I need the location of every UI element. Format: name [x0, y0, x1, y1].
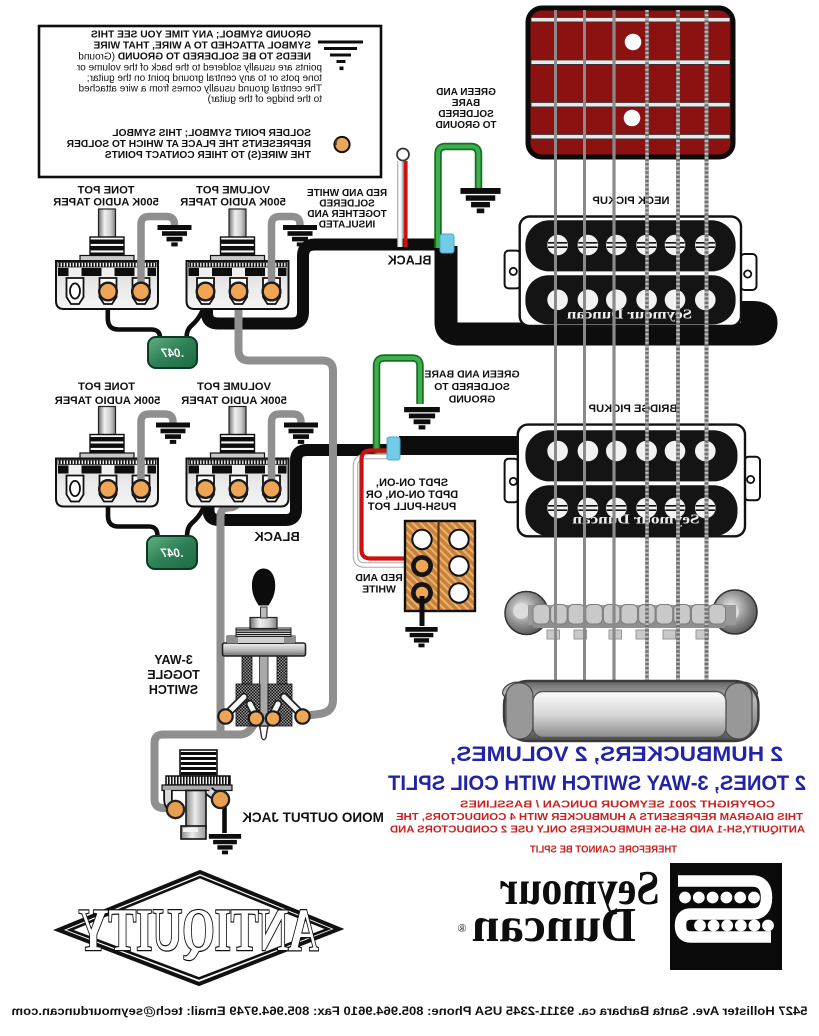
- svg-text:VOLUME POT: VOLUME POT: [197, 381, 271, 393]
- svg-text:GROUND SYMBOL; ANY TIME YOU SE: GROUND SYMBOL; ANY TIME YOU SEE THIS: [91, 30, 311, 41]
- svg-text:SOLDERED: SOLDERED: [319, 199, 375, 210]
- svg-text:®: ®: [457, 921, 466, 935]
- svg-text:500K AUDIO TAPER: 500K AUDIO TAPER: [180, 197, 286, 209]
- svg-text:ANTIQUITY: ANTIQUITY: [78, 897, 318, 963]
- svg-text:2 HUMBUCKERS, 2 VOLUMES,: 2 HUMBUCKERS, 2 VOLUMES,: [450, 743, 783, 766]
- svg-text:SOLDERED: SOLDERED: [438, 109, 494, 120]
- svg-text:THIS DIAGRAM REPRESENTS A HUMB: THIS DIAGRAM REPRESENTS A HUMBUCKER WITH…: [396, 811, 803, 823]
- svg-text:tone pots or to any central gr: tone pots or to any central ground point…: [87, 73, 322, 84]
- svg-text:NEEDS TO BE SOLDERED TO GROUND: NEEDS TO BE SOLDERED TO GROUND (Ground: [78, 52, 311, 63]
- svg-text:GREEN AND BARE: GREEN AND BARE: [424, 369, 519, 381]
- svg-text:RED AND: RED AND: [355, 572, 403, 584]
- svg-text:500K AUDIO TAPER: 500K AUDIO TAPER: [55, 395, 161, 407]
- svg-text:500K AUDIO TAPER: 500K AUDIO TAPER: [181, 395, 287, 407]
- svg-text:TOGGLE: TOGGLE: [147, 668, 200, 682]
- svg-text:BRIDGE PICKUP: BRIDGE PICKUP: [588, 403, 677, 415]
- svg-text:TONE POT: TONE POT: [78, 381, 135, 393]
- svg-text:ANTIQUITY,SH-1 AND SH-55 HUMBU: ANTIQUITY,SH-1 AND SH-55 HUMBUCKERS ONLY…: [390, 824, 805, 836]
- svg-text:NECK PICKUP: NECK PICKUP: [592, 195, 670, 207]
- svg-text:VOLUME POT: VOLUME POT: [196, 185, 270, 197]
- svg-text:3-WAY: 3-WAY: [154, 653, 193, 667]
- svg-text:COPYRIGHT 2001 SEYMOUR DUNCAN: COPYRIGHT 2001 SEYMOUR DUNCAN / BASSLINE…: [460, 799, 775, 811]
- svg-text:INSULATED: INSULATED: [319, 220, 375, 231]
- svg-text:TOGETHER AND: TOGETHER AND: [307, 209, 386, 220]
- svg-text:SPDT ON-ON,: SPDT ON-ON,: [376, 477, 448, 489]
- svg-text:DPDT ON-ON, OR: DPDT ON-ON, OR: [366, 489, 458, 501]
- svg-text:THEREFORE CANNOT BE SPLIT: THEREFORE CANNOT BE SPLIT: [529, 844, 677, 856]
- svg-text:TO GROUND: TO GROUND: [436, 120, 497, 131]
- svg-text:2 TONES, 3-WAY SWITCH WITH COI: 2 TONES, 3-WAY SWITCH WITH COIL SPLIT: [388, 772, 806, 795]
- svg-text:GROUND: GROUND: [448, 394, 495, 406]
- svg-text:5427 Hollister Ave. Santa Barb: 5427 Hollister Ave. Santa Barbara ca. 93…: [11, 1004, 807, 1018]
- svg-text:points are usually soldered to: points are usually soldered to the back …: [76, 63, 322, 74]
- svg-text:SOLDER POINT SYMBOL; THIS SYMB: SOLDER POINT SYMBOL; THIS SYMBOL: [112, 128, 311, 139]
- svg-text:BARE: BARE: [452, 98, 481, 109]
- svg-text:SYMBOL ATTACHED TO A WIRE, THA: SYMBOL ATTACHED TO A WIRE, THAT WIRE: [93, 41, 311, 52]
- svg-text:Duncan: Duncan: [472, 897, 636, 952]
- svg-text:SWITCH: SWITCH: [149, 683, 198, 697]
- svg-text:REPRESENTS THE PLACE AT WHICH: REPRESENTS THE PLACE AT WHICH TO SOLDER: [66, 139, 311, 150]
- svg-text:MONO OUTPUT JACK: MONO OUTPUT JACK: [242, 810, 384, 825]
- svg-text:PUSH-PULL POT: PUSH-PULL POT: [368, 501, 457, 513]
- svg-text:GREEN AND: GREEN AND: [436, 87, 496, 98]
- svg-text:BLACK: BLACK: [254, 529, 300, 544]
- svg-text:TONE POT: TONE POT: [77, 185, 134, 197]
- svg-text:.047: .047: [161, 348, 184, 360]
- svg-text:The central ground usually com: The central ground usually comes from a …: [79, 84, 322, 95]
- svg-text:BLACK: BLACK: [388, 254, 432, 268]
- svg-text:Seymour Duncan: Seymour Duncan: [572, 512, 700, 527]
- svg-text:to the bridge of the guitar): to the bridge of the guitar): [207, 94, 322, 105]
- svg-text:.047: .047: [160, 548, 183, 560]
- svg-text:500K AUDIO TAPER: 500K AUDIO TAPER: [53, 197, 159, 209]
- svg-text:SOLDERED TO: SOLDERED TO: [434, 381, 510, 393]
- svg-text:RED AND WHITE: RED AND WHITE: [307, 188, 388, 199]
- svg-text:WHITE: WHITE: [362, 584, 396, 596]
- svg-text:THE WIRE(S) TO THIER CONTACT P: THE WIRE(S) TO THIER CONTACT POINTS: [105, 150, 311, 161]
